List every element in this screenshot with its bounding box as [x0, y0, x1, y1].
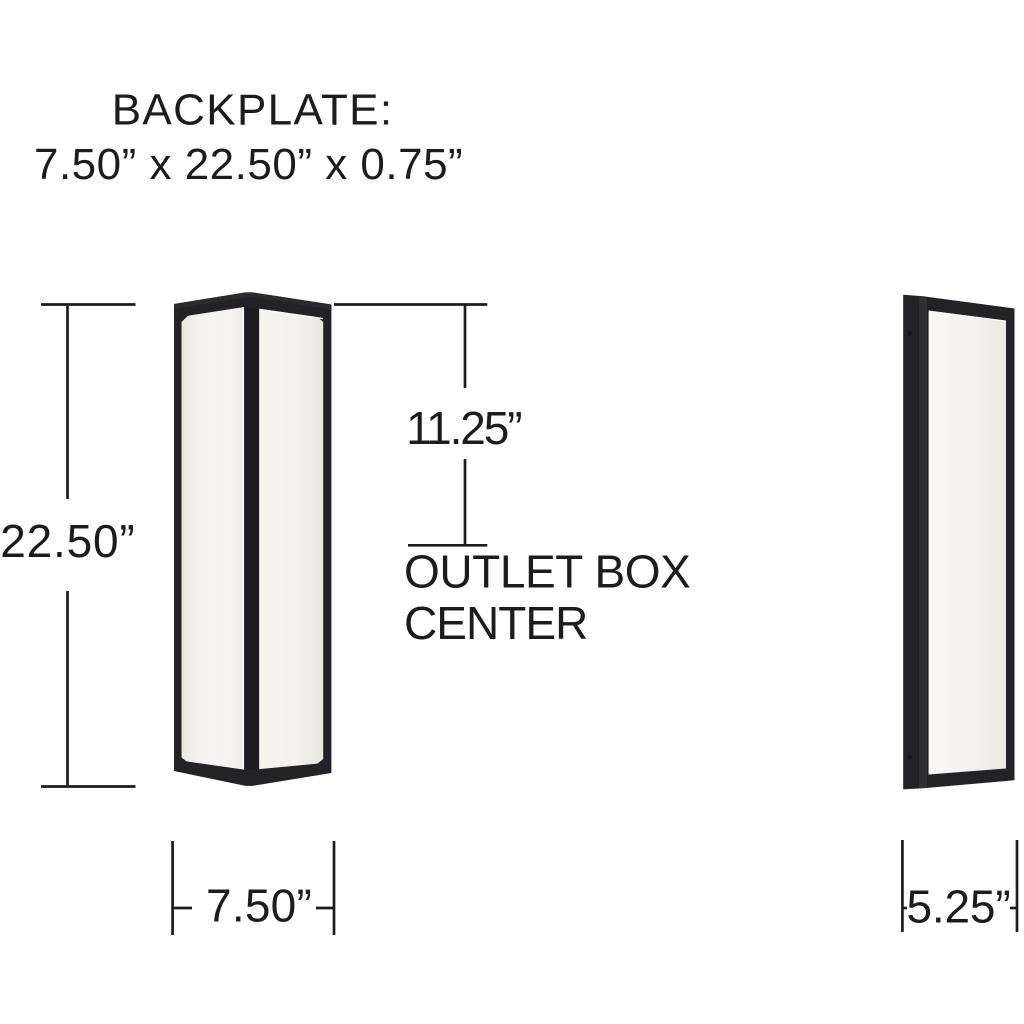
svg-text:7.50” x 22.50” x 0.75”: 7.50” x 22.50” x 0.75” — [34, 140, 463, 189]
svg-text:CENTER: CENTER — [404, 597, 587, 649]
svg-text:7.50”: 7.50” — [206, 880, 312, 932]
svg-text:5.25”: 5.25” — [907, 881, 1011, 933]
svg-text:22.50”: 22.50” — [0, 515, 135, 567]
svg-text:11.25”: 11.25” — [406, 402, 521, 454]
svg-text:BACKPLATE:: BACKPLATE: — [112, 86, 394, 135]
svg-text:OUTLET BOX: OUTLET BOX — [404, 546, 690, 598]
